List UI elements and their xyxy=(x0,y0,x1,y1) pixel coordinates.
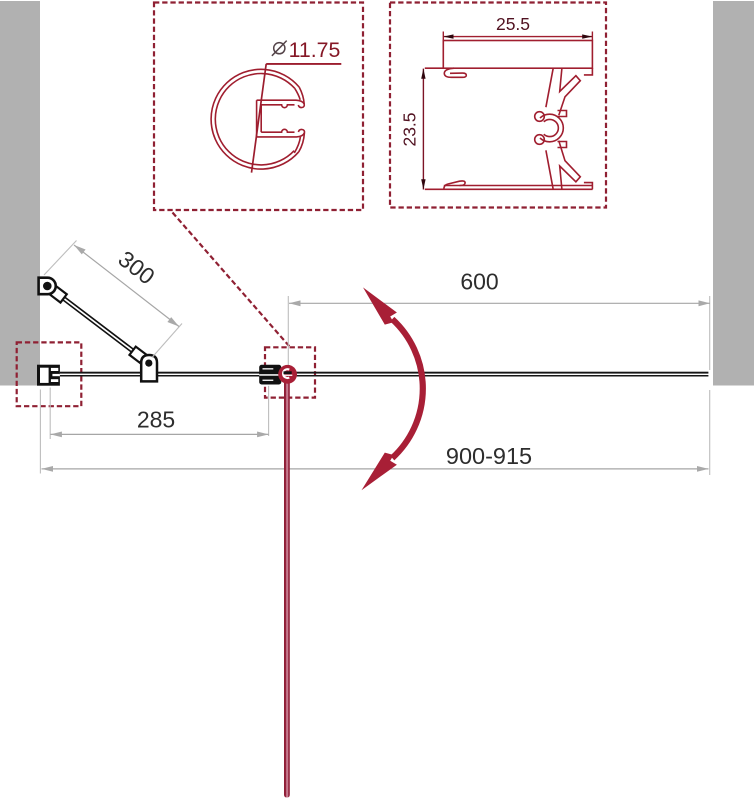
svg-text:23.5: 23.5 xyxy=(400,112,420,146)
svg-text:11.75: 11.75 xyxy=(289,38,341,62)
svg-text:900-915: 900-915 xyxy=(446,443,532,469)
svg-text:285: 285 xyxy=(137,407,175,433)
svg-text:25.5: 25.5 xyxy=(496,14,530,34)
svg-text:600: 600 xyxy=(460,269,498,295)
